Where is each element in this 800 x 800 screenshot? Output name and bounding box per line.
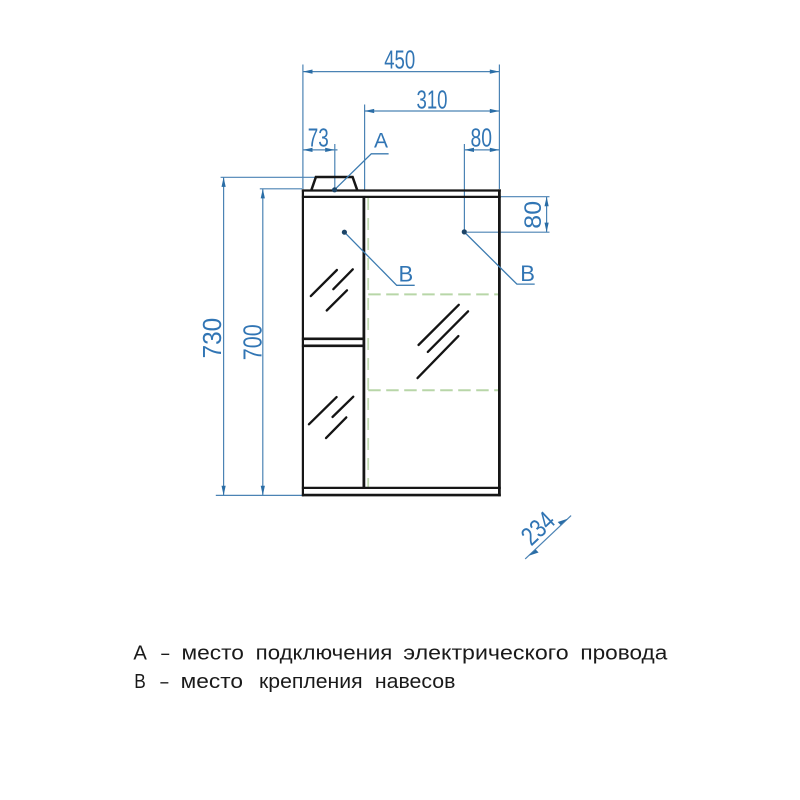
svg-text:73: 73 bbox=[308, 123, 329, 153]
svg-text:В: В bbox=[399, 261, 414, 286]
svg-text:80: 80 bbox=[471, 123, 493, 153]
svg-text:В: В bbox=[520, 261, 535, 286]
svg-text:700: 700 bbox=[238, 324, 268, 360]
svg-text:80: 80 bbox=[520, 201, 547, 229]
svg-text:310: 310 bbox=[417, 85, 448, 115]
svg-text:В–местокреплениянавесов: В–местокреплениянавесов bbox=[134, 671, 455, 693]
svg-text:730: 730 bbox=[197, 318, 227, 359]
svg-text:450: 450 bbox=[384, 44, 415, 74]
svg-text:А: А bbox=[374, 129, 388, 152]
